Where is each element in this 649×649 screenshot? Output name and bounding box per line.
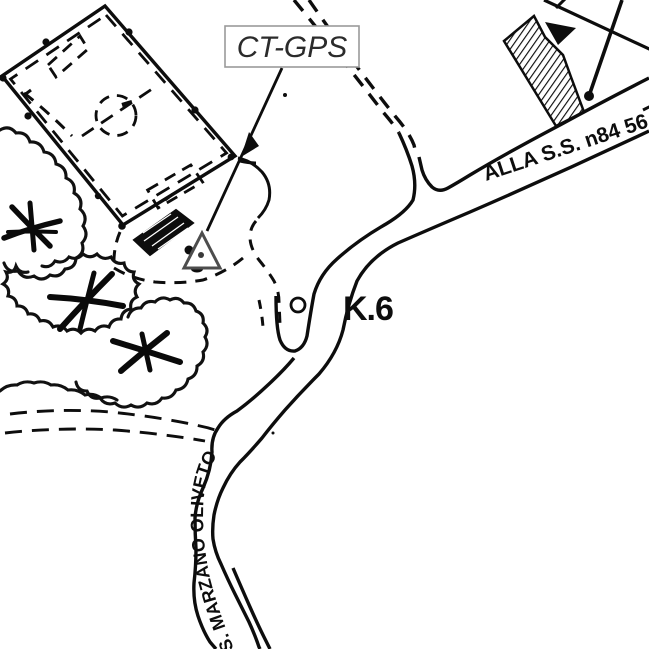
- svg-text:K.6: K.6: [343, 290, 393, 328]
- svg-text:CT-GPS: CT-GPS: [237, 31, 348, 64]
